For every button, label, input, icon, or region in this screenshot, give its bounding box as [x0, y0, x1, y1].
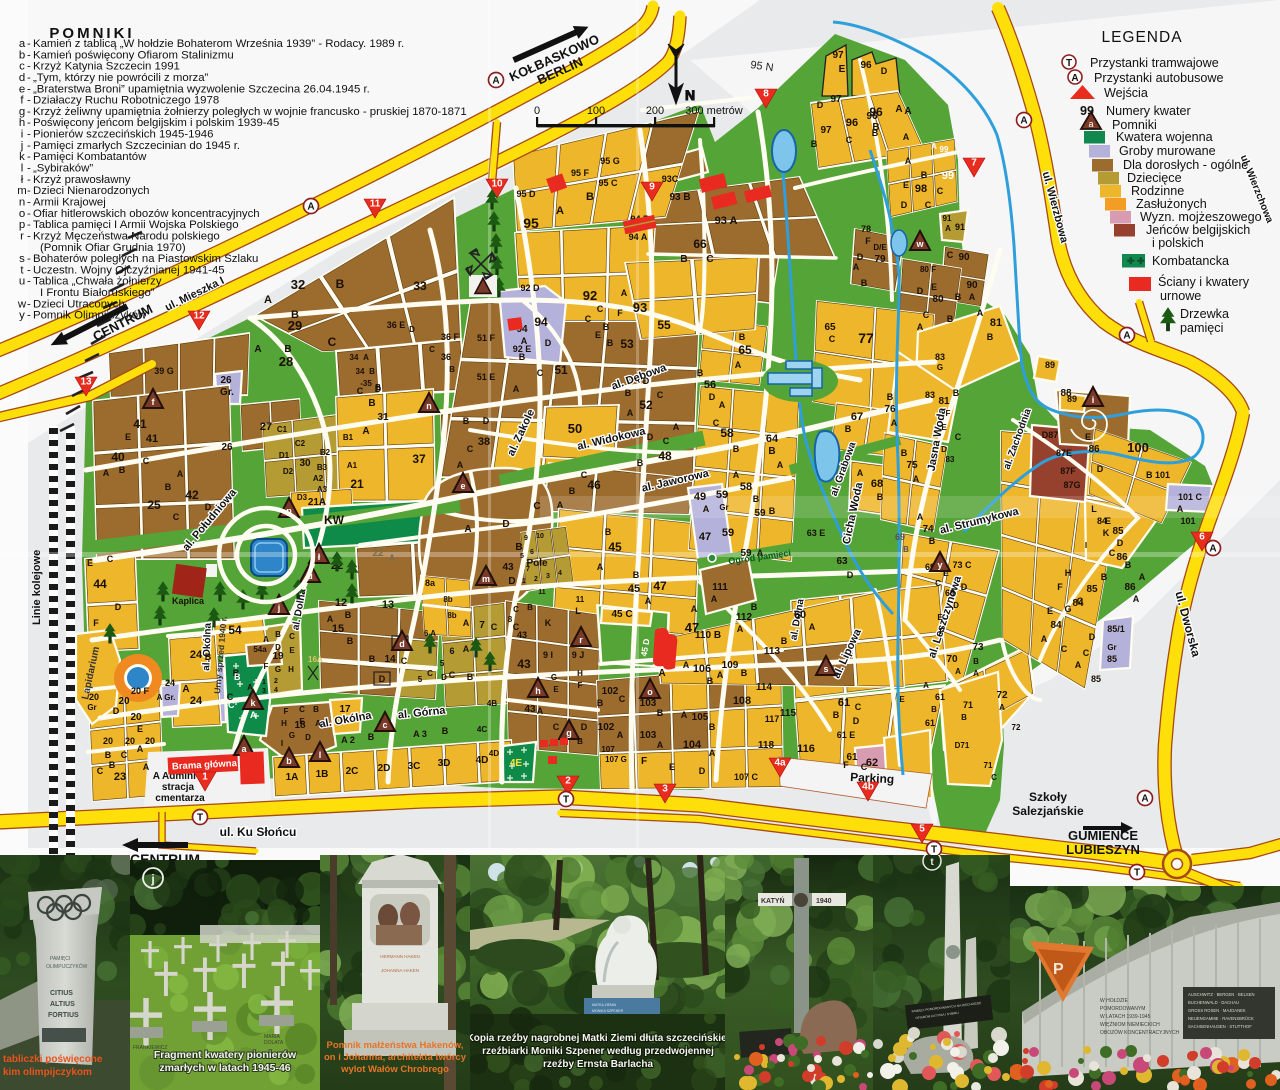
svg-text:Krzyż Katynia Szczecin 1991: Krzyż Katynia Szczecin 1991 — [33, 61, 180, 73]
svg-text:D: D — [709, 392, 716, 402]
svg-text:C: C — [449, 670, 456, 680]
svg-text:20: 20 — [125, 736, 135, 746]
svg-text:-: - — [27, 197, 31, 209]
svg-text:11: 11 — [538, 589, 546, 596]
svg-text:A3: A3 — [317, 485, 328, 494]
svg-text:C: C — [585, 314, 592, 324]
svg-text:3C: 3C — [408, 761, 421, 772]
svg-text:Fragment kwatery pionierów: Fragment kwatery pionierów — [154, 1049, 297, 1061]
svg-text:95 C: 95 C — [598, 178, 618, 188]
svg-text:118: 118 — [758, 740, 775, 751]
svg-text:-: - — [27, 151, 31, 163]
svg-text:A: A — [363, 353, 369, 362]
svg-text:111: 111 — [712, 582, 728, 593]
svg-text:93C: 93C — [662, 174, 679, 184]
svg-text:DOLATA: DOLATA — [264, 1040, 284, 1046]
svg-text:A: A — [1141, 794, 1148, 805]
svg-text:-: - — [27, 230, 31, 242]
svg-text:10: 10 — [536, 533, 544, 540]
svg-text:F: F — [865, 236, 871, 246]
svg-text:43: 43 — [517, 630, 527, 640]
svg-text:A: A — [711, 594, 718, 604]
svg-text:3: 3 — [546, 573, 550, 580]
svg-text:C: C — [299, 705, 305, 714]
svg-text:45 C: 45 C — [611, 609, 632, 620]
svg-text:CITIUS: CITIUS — [50, 990, 73, 997]
svg-text:44: 44 — [93, 577, 107, 591]
svg-text:Groby murowane: Groby murowane — [1119, 144, 1216, 158]
svg-text:B: B — [973, 657, 979, 666]
svg-text:n: n — [19, 197, 25, 209]
svg-text:B2: B2 — [320, 448, 331, 457]
svg-text:92 D: 92 D — [520, 283, 540, 293]
svg-text:27: 27 — [260, 421, 272, 433]
svg-text:E: E — [669, 762, 675, 772]
svg-text:72: 72 — [996, 690, 1008, 701]
svg-text:rzeźby Ernsta Barlacha: rzeźby Ernsta Barlacha — [543, 1059, 653, 1070]
svg-text:110 B: 110 B — [695, 630, 721, 641]
svg-text:D: D — [699, 766, 706, 776]
svg-text:A2: A2 — [313, 474, 324, 483]
svg-text:D: D — [817, 100, 824, 110]
svg-text:12: 12 — [335, 597, 347, 609]
svg-text:5: 5 — [418, 675, 423, 684]
svg-text:A: A — [719, 400, 726, 410]
svg-text:9 J: 9 J — [572, 650, 585, 660]
svg-text:59: 59 — [716, 489, 728, 501]
svg-text:E: E — [931, 282, 937, 292]
svg-text:G: G — [289, 731, 295, 740]
svg-text:WIĘŹNIOM NIEMIECKICH: WIĘŹNIOM NIEMIECKICH — [1100, 1021, 1160, 1028]
svg-text:103: 103 — [640, 730, 657, 741]
svg-text:B: B — [284, 344, 291, 355]
svg-text:D: D — [961, 582, 968, 592]
svg-text:81: 81 — [990, 317, 1002, 329]
svg-text:A: A — [733, 470, 740, 480]
svg-text:A: A — [263, 635, 269, 644]
svg-text:Przystanki autobusowe: Przystanki autobusowe — [1094, 71, 1224, 85]
svg-text:A: A — [735, 360, 742, 370]
svg-text:K: K — [1103, 528, 1110, 538]
svg-text:D: D — [647, 432, 654, 442]
svg-text:91: 91 — [943, 214, 952, 223]
svg-text:Pamięci zmarłych Szczecinian d: Pamięci zmarłych Szczecinian do 1945 r. — [33, 140, 240, 152]
svg-text:H: H — [281, 719, 287, 728]
svg-text:A: A — [703, 504, 710, 514]
svg-text:o: o — [647, 687, 653, 697]
svg-text:73: 73 — [972, 642, 984, 653]
svg-text:41: 41 — [146, 433, 158, 445]
svg-text:tabliczki poświęcone: tabliczki poświęcone — [3, 1054, 103, 1065]
svg-text:d: d — [19, 72, 25, 84]
svg-text:B: B — [929, 536, 936, 546]
svg-text:B: B — [369, 654, 376, 664]
svg-text:SACHSENHAUSEN · STUTTHOF: SACHSENHAUSEN · STUTTHOF — [1188, 1024, 1252, 1029]
svg-text:B: B — [527, 603, 533, 612]
svg-text:j: j — [150, 872, 154, 886]
svg-text:Przystanki tramwajowe: Przystanki tramwajowe — [1090, 56, 1219, 70]
svg-text:A: A — [913, 474, 920, 484]
svg-text:I: I — [281, 739, 283, 748]
svg-text:85: 85 — [1091, 674, 1101, 684]
svg-text:83: 83 — [946, 455, 955, 464]
svg-text:11: 11 — [370, 199, 381, 210]
svg-text:B: B — [781, 636, 788, 646]
svg-text:Uczestn. Wojny Ojczyźnianej 19: Uczestn. Wojny Ojczyźnianej 1941-45 — [33, 264, 225, 276]
svg-text:B: B — [449, 365, 455, 374]
svg-text:67: 67 — [851, 411, 863, 423]
svg-text:20: 20 — [130, 712, 142, 723]
svg-text:W LATACH 1939-1945: W LATACH 1939-1945 — [1100, 1014, 1151, 1020]
svg-text:47: 47 — [699, 531, 711, 543]
svg-text:A: A — [777, 460, 784, 470]
svg-text:C: C — [357, 386, 364, 396]
svg-text:-: - — [27, 38, 31, 50]
svg-text:13: 13 — [80, 377, 92, 388]
svg-text:51: 51 — [554, 363, 568, 377]
svg-text:GUMIEŃCE: GUMIEŃCE — [1068, 828, 1138, 843]
svg-text:D: D — [1089, 632, 1096, 642]
svg-text:MONIKA SZPENER: MONIKA SZPENER — [592, 1009, 624, 1013]
svg-text:B: B — [877, 492, 884, 502]
svg-text:FORTIUS: FORTIUS — [48, 1012, 79, 1019]
svg-text:30: 30 — [299, 458, 311, 469]
svg-text:85: 85 — [1086, 584, 1098, 595]
svg-text:Gr.: Gr. — [220, 387, 234, 398]
svg-text:1: 1 — [202, 772, 208, 783]
svg-text:94 A: 94 A — [629, 232, 648, 242]
svg-text:C: C — [713, 418, 720, 428]
svg-text:84: 84 — [1097, 516, 1107, 526]
svg-text:B: B — [109, 760, 116, 770]
svg-text:B: B — [603, 322, 610, 332]
svg-text:LEGENDA: LEGENDA — [1101, 29, 1182, 46]
svg-text:B: B — [597, 698, 604, 708]
svg-text:85: 85 — [1112, 526, 1124, 537]
svg-text:104: 104 — [683, 739, 702, 751]
svg-text:D: D — [917, 286, 924, 296]
svg-text:Linie kolejowe: Linie kolejowe — [31, 550, 43, 625]
svg-text:A: A — [627, 408, 634, 418]
svg-text:106: 106 — [693, 663, 711, 675]
svg-text:B: B — [887, 392, 894, 402]
svg-text:90: 90 — [966, 280, 978, 291]
svg-text:D: D — [941, 445, 947, 454]
svg-text:stracja: stracja — [162, 782, 195, 793]
svg-text:A 3: A 3 — [413, 729, 427, 739]
svg-text:C: C — [663, 436, 670, 446]
svg-text:43: 43 — [517, 657, 531, 671]
svg-text:B: B — [987, 332, 994, 342]
svg-text:LUBIESZYN: LUBIESZYN — [1066, 842, 1140, 857]
svg-text:D: D — [881, 66, 888, 76]
svg-text:A: A — [999, 703, 1005, 712]
svg-text:33: 33 — [413, 279, 427, 293]
svg-text:F: F — [617, 308, 623, 318]
svg-text:78: 78 — [861, 224, 871, 234]
svg-text:D: D — [853, 716, 860, 726]
svg-text:C: C — [1083, 648, 1090, 658]
svg-text:D: D — [1117, 538, 1124, 548]
svg-text:2: 2 — [534, 576, 538, 583]
svg-text:Krzyż Męczeństwa Narodu polski: Krzyż Męczeństwa Narodu polskiego — [33, 230, 220, 242]
svg-text:cmentarza: cmentarza — [155, 793, 205, 804]
svg-text:D3: D3 — [297, 493, 308, 502]
svg-text:6: 6 — [530, 549, 534, 556]
svg-text:50: 50 — [568, 421, 582, 436]
svg-text:p: p — [19, 219, 25, 231]
svg-text:D: D — [502, 519, 509, 530]
svg-text:A: A — [556, 205, 564, 217]
svg-text:D: D — [508, 576, 515, 587]
svg-text:B: B — [707, 676, 714, 686]
svg-text:2C: 2C — [346, 766, 359, 777]
svg-text:4D: 4D — [489, 749, 499, 758]
svg-text:✚ ✚: ✚ ✚ — [1127, 256, 1145, 266]
svg-text:C: C — [935, 579, 941, 588]
svg-text:4E: 4E — [510, 758, 523, 769]
svg-text:102: 102 — [598, 722, 615, 733]
svg-text:k: k — [19, 151, 25, 163]
svg-text:D: D — [275, 643, 281, 652]
svg-text:A: A — [521, 336, 528, 346]
svg-text:34: 34 — [350, 353, 359, 362]
svg-text:53: 53 — [620, 337, 634, 351]
svg-text:43: 43 — [524, 704, 536, 715]
svg-text:-: - — [27, 219, 31, 231]
svg-text:n: n — [426, 401, 432, 411]
svg-text:B: B — [467, 672, 474, 682]
svg-text:105: 105 — [692, 712, 709, 723]
svg-text:B: B — [861, 278, 868, 288]
svg-text:C: C — [925, 200, 932, 210]
svg-text:(Pomnik Ofiar Grudnia 1970): (Pomnik Ofiar Grudnia 1970) — [40, 242, 186, 254]
svg-text:107: 107 — [601, 745, 615, 754]
svg-text:B: B — [633, 570, 640, 580]
svg-text:7: 7 — [479, 620, 485, 631]
svg-text:69: 69 — [895, 532, 905, 542]
svg-text:B: B — [768, 446, 775, 457]
svg-text:69: 69 — [945, 588, 955, 598]
svg-text:E: E — [941, 423, 947, 432]
svg-text:24: 24 — [190, 649, 203, 661]
svg-text:A: A — [513, 384, 520, 394]
svg-text:42: 42 — [185, 488, 199, 502]
svg-text:A: A — [1020, 116, 1027, 127]
svg-text:103: 103 — [640, 698, 657, 709]
svg-text:ul. Ku Słońcu: ul. Ku Słońcu — [220, 825, 297, 839]
svg-text:A: A — [1133, 594, 1140, 604]
svg-text:Zasłużonych: Zasłużonych — [1136, 197, 1207, 211]
svg-text:m: m — [482, 574, 490, 584]
svg-text:45: 45 — [628, 583, 640, 595]
svg-text:46: 46 — [587, 478, 601, 492]
svg-text:C: C — [513, 605, 519, 614]
svg-text:B: B — [205, 652, 212, 662]
svg-text:21: 21 — [350, 477, 364, 491]
svg-text:97: 97 — [820, 125, 832, 136]
svg-text:36: 36 — [441, 352, 451, 362]
svg-text:4C: 4C — [477, 725, 487, 734]
svg-text:l: l — [319, 750, 322, 760]
svg-text:B: B — [733, 444, 740, 454]
svg-text:B: B — [119, 465, 126, 475]
svg-text:G: G — [1064, 604, 1071, 614]
svg-text:A: A — [307, 202, 314, 213]
svg-text:B: B — [903, 545, 909, 554]
svg-text:A: A — [903, 132, 910, 142]
svg-text:s: s — [19, 253, 25, 265]
svg-text:66: 66 — [693, 237, 707, 251]
svg-text:101: 101 — [1180, 516, 1195, 526]
svg-text:97: 97 — [832, 50, 844, 61]
svg-text:7: 7 — [971, 158, 977, 169]
svg-text:115: 115 — [780, 708, 797, 719]
svg-text:POMORDOWANYM: POMORDOWANYM — [1100, 1006, 1145, 1012]
svg-text:A: A — [645, 596, 652, 606]
svg-text:A: A — [917, 322, 924, 332]
svg-text:B: B — [955, 292, 962, 302]
svg-text:A: A — [327, 614, 334, 624]
svg-text:1: 1 — [262, 679, 266, 686]
svg-text:117: 117 — [765, 714, 780, 724]
svg-text:5: 5 — [440, 659, 445, 668]
svg-text:B: B — [105, 750, 112, 760]
svg-text:61: 61 — [925, 718, 935, 728]
svg-text:E: E — [137, 724, 143, 734]
svg-text:95 G: 95 G — [600, 156, 620, 166]
svg-text:Armii Krajowej: Armii Krajowej — [33, 197, 106, 209]
svg-text:-: - — [27, 72, 31, 84]
svg-text:73 C: 73 C — [952, 560, 972, 570]
svg-text:8a: 8a — [425, 578, 436, 588]
svg-text:63: 63 — [836, 556, 848, 567]
svg-text:13: 13 — [382, 599, 394, 611]
svg-text:C1: C1 — [277, 425, 288, 434]
svg-text:95: 95 — [523, 215, 539, 231]
svg-text:E: E — [903, 180, 909, 190]
svg-text:E: E — [553, 685, 559, 694]
svg-text:A: A — [617, 730, 624, 740]
svg-text:89: 89 — [1045, 360, 1055, 370]
svg-text:26: 26 — [220, 375, 232, 386]
svg-text:E: E — [899, 695, 905, 704]
svg-text:D1: D1 — [279, 451, 290, 460]
svg-text:F: F — [93, 618, 99, 628]
svg-text:A Gr.: A Gr. — [157, 693, 176, 702]
svg-text:B: B — [741, 668, 748, 678]
svg-text:3: 3 — [262, 688, 266, 695]
svg-text:C: C — [173, 512, 180, 522]
svg-text:E: E — [87, 558, 93, 568]
svg-text:116: 116 — [797, 743, 815, 755]
svg-text:B: B — [313, 705, 319, 714]
svg-text:D: D — [643, 376, 650, 386]
svg-text:58: 58 — [740, 481, 752, 493]
svg-text:4b: 4b — [862, 782, 874, 793]
svg-text:-: - — [27, 117, 31, 129]
svg-text:-: - — [27, 310, 31, 322]
svg-text:Działaczy Ruchu Robotniczego 1: Działaczy Ruchu Robotniczego 1978 — [33, 95, 219, 107]
svg-text:A: A — [557, 500, 564, 510]
svg-text:55: 55 — [657, 318, 671, 332]
svg-text:i polskich: i polskich — [1152, 236, 1204, 250]
svg-text:w: w — [17, 298, 27, 310]
svg-text:A: A — [182, 684, 189, 695]
svg-text:B: B — [872, 128, 879, 138]
svg-text:C: C — [1061, 644, 1068, 654]
svg-text:G: G — [275, 665, 281, 674]
svg-text:2D: 2D — [378, 763, 391, 774]
svg-text:56: 56 — [704, 379, 716, 391]
svg-text:A: A — [717, 670, 724, 680]
svg-text:E: E — [937, 613, 943, 622]
svg-text:C: C — [657, 390, 664, 400]
svg-text:11: 11 — [576, 595, 585, 604]
svg-text:54a: 54a — [253, 645, 267, 654]
svg-text:108: 108 — [733, 695, 751, 707]
svg-text:75: 75 — [906, 460, 918, 471]
svg-text:B: B — [833, 710, 840, 720]
svg-text:91: 91 — [955, 222, 965, 232]
svg-text:C2: C2 — [295, 439, 306, 448]
svg-text:a: a — [19, 38, 26, 50]
svg-text:A: A — [537, 706, 544, 716]
svg-text:34: 34 — [356, 367, 365, 376]
svg-text:m: m — [17, 185, 27, 197]
svg-text:B: B — [463, 416, 470, 426]
svg-text:25: 25 — [147, 498, 161, 512]
svg-text:-: - — [27, 163, 31, 175]
svg-text:Dziecięce: Dziecięce — [1127, 171, 1182, 185]
svg-text:26: 26 — [221, 442, 233, 453]
svg-text:Poświęcony jeńcom belgijskim i: Poświęcony jeńcom belgijskim i polskim 1… — [33, 117, 279, 129]
svg-text:e: e — [460, 481, 465, 491]
svg-text:B: B — [680, 254, 687, 265]
svg-text:36 F: 36 F — [441, 332, 460, 342]
svg-text:96: 96 — [860, 60, 872, 71]
svg-text:B: B — [569, 486, 576, 496]
svg-text:79: 79 — [874, 254, 886, 265]
svg-text:A: A — [492, 76, 499, 87]
svg-text:84: 84 — [1050, 620, 1062, 631]
svg-text:71: 71 — [963, 700, 973, 710]
svg-text:A: A — [737, 624, 744, 634]
svg-text:KATYŃ: KATYŃ — [761, 896, 785, 905]
svg-text:-: - — [27, 298, 31, 310]
svg-text:y: y — [19, 310, 25, 322]
svg-text:-: - — [27, 253, 31, 265]
svg-text:D: D — [305, 733, 311, 742]
svg-text:o: o — [19, 208, 25, 220]
svg-text:B: B — [605, 527, 612, 537]
svg-text:I: I — [1085, 541, 1087, 550]
svg-text:B: B — [845, 424, 852, 434]
svg-text:C: C — [533, 501, 540, 512]
svg-text:B: B — [953, 388, 960, 398]
svg-text:74: 74 — [922, 524, 934, 535]
svg-text:114: 114 — [756, 682, 773, 693]
svg-text:100: 100 — [587, 105, 605, 117]
svg-text:AUSCHWITZ · BERGEN · BELSEN: AUSCHWITZ · BERGEN · BELSEN — [1188, 992, 1255, 997]
svg-text:-: - — [27, 208, 31, 220]
svg-text:G: G — [551, 673, 557, 682]
svg-text:51 E: 51 E — [477, 372, 496, 382]
svg-text:L: L — [1091, 504, 1097, 514]
svg-text:76: 76 — [884, 404, 896, 415]
svg-text:Gr: Gr — [719, 503, 728, 512]
svg-text:A: A — [969, 292, 976, 302]
